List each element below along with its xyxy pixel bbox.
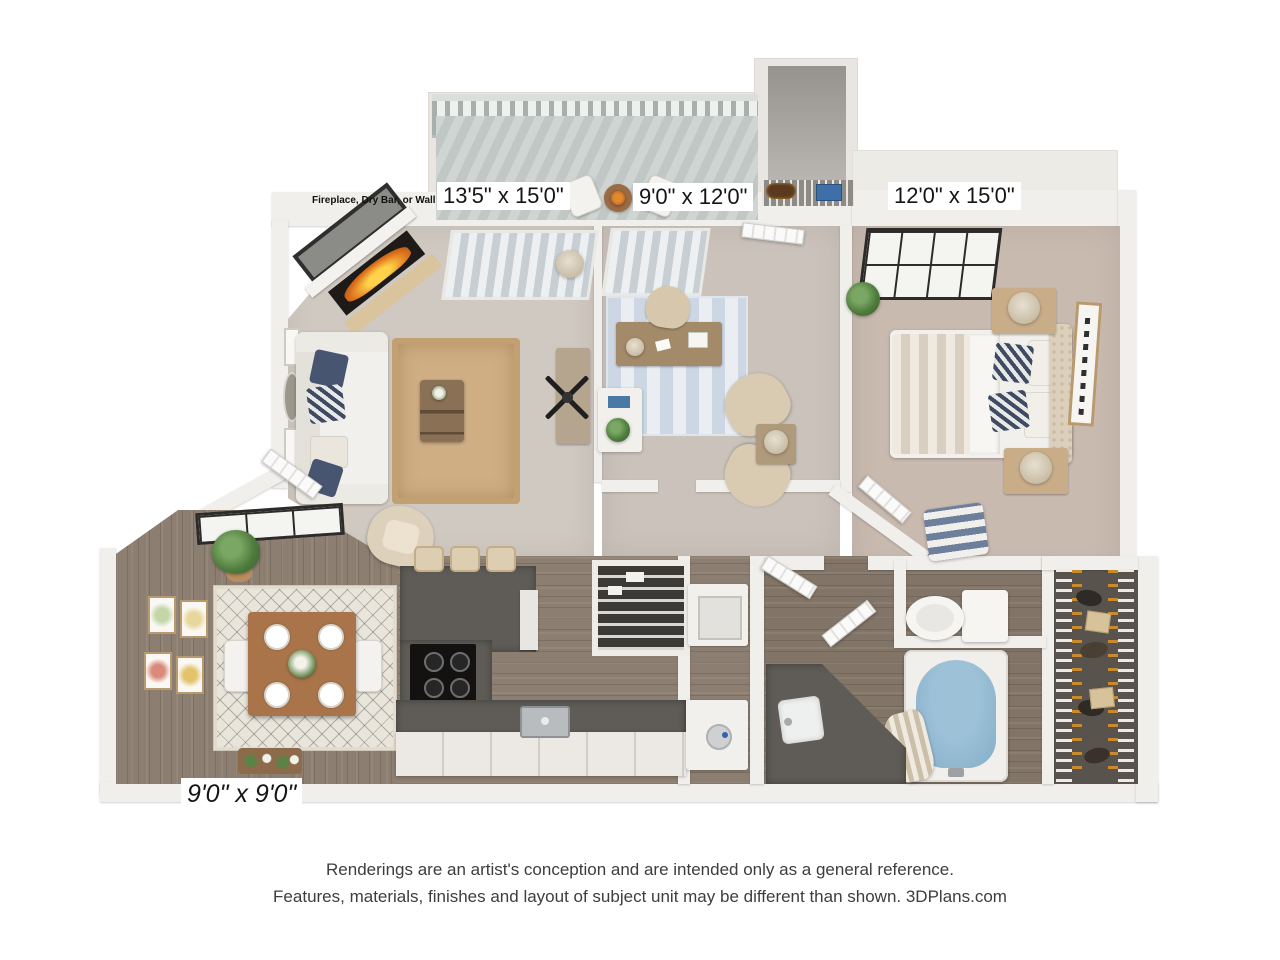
sofa-arm-top xyxy=(296,332,388,352)
closet-hangers-right xyxy=(1108,566,1118,780)
dryer xyxy=(688,584,748,646)
fireplace-note-label: Fireplace, Dry Bar, or Wall xyxy=(312,194,436,208)
closet-box-2 xyxy=(1089,687,1115,709)
dining-plant xyxy=(212,530,260,574)
office-cabinet xyxy=(598,388,642,452)
sofa-pillow-2 xyxy=(306,384,347,425)
toilet-tank xyxy=(962,590,1008,642)
window-box-flowers xyxy=(238,748,302,774)
master-bedroom-dimensions: 12'0" x 15'0" xyxy=(888,182,1021,210)
vanity-faucet xyxy=(784,717,793,726)
washer xyxy=(686,700,748,770)
sofa-pillow-1 xyxy=(309,349,349,389)
pantry-box-1 xyxy=(626,572,644,582)
plate-3 xyxy=(264,682,290,708)
storage-room-floor xyxy=(768,66,846,186)
vanity-sink xyxy=(777,695,825,744)
duffel-bag xyxy=(766,183,796,199)
dining-area-dimensions: 9'0" x 9'0" xyxy=(181,778,302,810)
desk-laptop xyxy=(688,332,708,348)
desk-paper xyxy=(655,338,671,351)
fan-hub xyxy=(562,392,573,403)
kitchen-cabinets xyxy=(396,732,686,776)
bedroom2-dimensions: 9'0" x 12'0" xyxy=(633,183,753,211)
toilet-nook-wall xyxy=(894,560,906,644)
burner-3 xyxy=(424,678,444,698)
side-table-lamp xyxy=(764,430,788,454)
right-wall-lower xyxy=(1136,556,1158,802)
tub-faucet xyxy=(948,768,964,777)
closet-box-1 xyxy=(1085,610,1112,633)
table-centerpiece xyxy=(288,650,316,678)
washer-dial-dot xyxy=(722,732,728,738)
bar-stool-2 xyxy=(450,546,480,572)
plate-4 xyxy=(318,682,344,708)
closet-shelf-right xyxy=(1118,562,1134,782)
bed-duvet-striped xyxy=(892,334,972,454)
dining-art-2 xyxy=(180,600,208,638)
closet-shelf-left xyxy=(1056,562,1072,782)
bistro-flowers xyxy=(611,191,625,205)
dining-art-4 xyxy=(176,656,204,694)
bedroom-window xyxy=(858,228,1003,300)
closet-wall-left xyxy=(1042,556,1054,784)
office-bedroom-wall xyxy=(840,226,852,492)
coffee-table-flowers xyxy=(432,386,446,400)
bedroom-bench xyxy=(923,502,990,562)
living-room-dimensions: 13'5" x 15'0" xyxy=(437,182,570,210)
disclaimer-line-1: Renderings are an artist's conception an… xyxy=(0,860,1280,880)
office-window-blinds xyxy=(601,228,711,296)
dining-art-3 xyxy=(144,652,172,690)
nightstand-lamp-bottom xyxy=(1020,452,1052,484)
cabinet-plant xyxy=(606,418,630,442)
pantry-shelves xyxy=(592,560,690,656)
hall-wall-a xyxy=(602,480,658,492)
washer-dial xyxy=(706,724,732,750)
pantry-box-2 xyxy=(608,586,622,595)
nightstand-lamp-top xyxy=(1008,292,1040,324)
disclaimer-line-2: Features, materials, finishes and layout… xyxy=(0,887,1280,907)
right-wall-upper xyxy=(1118,190,1136,572)
stove xyxy=(410,644,476,704)
dining-chair-right xyxy=(354,640,382,692)
bed-pillow-striped-1 xyxy=(992,342,1034,384)
ceiling-fan xyxy=(538,368,596,426)
office-desk xyxy=(616,322,722,366)
burner-4 xyxy=(450,678,470,698)
island-end-panel xyxy=(520,590,538,650)
kitchen-sink xyxy=(520,706,570,738)
bedroom-plant xyxy=(846,282,880,316)
bed-pillow-striped-2 xyxy=(988,390,1031,433)
cabinet-books xyxy=(608,396,630,408)
dining-table xyxy=(248,612,356,716)
dryer-door xyxy=(698,596,742,640)
storage-bin xyxy=(816,184,842,201)
dining-left-wall xyxy=(100,548,116,794)
wall-sign-script xyxy=(1078,311,1090,415)
plate-2 xyxy=(318,624,344,650)
laundry-wall-right xyxy=(750,556,764,784)
plate-1 xyxy=(264,624,290,650)
bar-stool-1 xyxy=(414,546,444,572)
toilet-seat xyxy=(916,604,954,632)
bed-group xyxy=(890,330,1072,458)
bar-stool-3 xyxy=(486,546,516,572)
desk-lamp xyxy=(626,338,644,356)
living-floor-lamp xyxy=(556,250,584,278)
sink-faucet xyxy=(541,717,549,725)
floor-plan-rendering: Fireplace, Dry Bar, or Wall 13'5" x 15'0… xyxy=(0,0,1280,960)
burner-1 xyxy=(424,652,444,672)
dining-art-1 xyxy=(148,596,176,634)
burner-2 xyxy=(450,652,470,672)
bed-headboard xyxy=(1050,324,1072,464)
